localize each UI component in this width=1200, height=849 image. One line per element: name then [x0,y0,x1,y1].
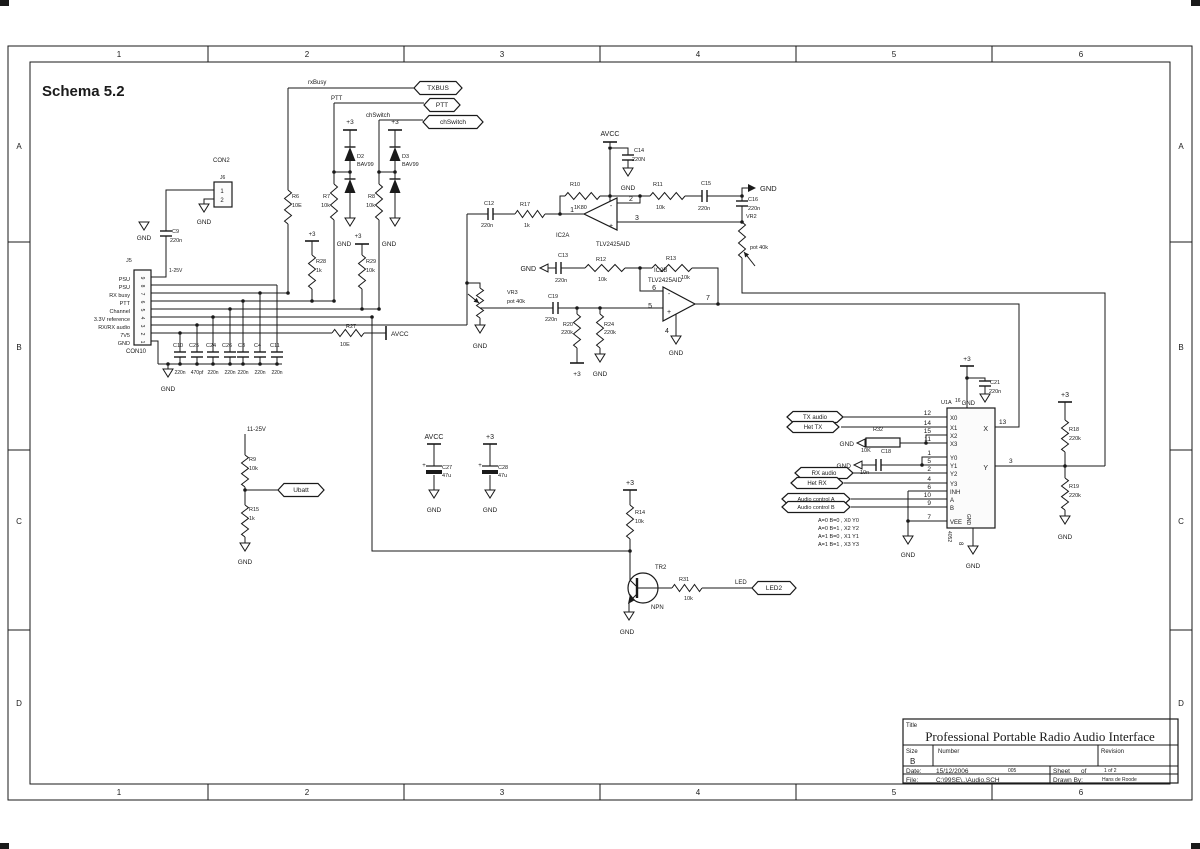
schematic-label: C4 [254,343,261,349]
schematic-label: + [609,223,613,230]
junction-dot [195,323,199,327]
junction-dot [716,302,720,306]
gnd-arrow-icon [624,612,634,620]
border-column-number: 1 [117,788,122,797]
schematic-label: A [950,498,954,504]
schematic-label: C24 [206,343,216,349]
corner-mark [0,0,9,6]
schematic-label: 10K [861,448,871,454]
port-label: Audio control B [797,505,835,511]
junction-dot [228,307,232,311]
schematic-label: GND [901,552,916,559]
port-label: LED2 [766,585,783,592]
junction-dot [348,170,352,174]
port-label: TX audio [803,415,828,421]
junction-dot [360,307,364,311]
schematic-label: C3 [238,343,245,349]
resistor [242,505,249,537]
schematic-label: C16 [748,197,758,203]
junction-dot [608,194,612,198]
resistor [627,505,634,539]
border-column-number: 3 [500,50,505,59]
schematic-label: GND [473,343,488,350]
junction-dot [178,362,182,366]
title-block-text: Hans de Roode [1102,777,1137,783]
schematic-label: 6 [927,484,931,491]
schematic-label: 10E [292,203,302,209]
resistor [1062,478,1069,510]
schematic-label: 10E [340,342,350,348]
schematic-label: 220n [237,370,248,376]
junction-dot [241,362,245,366]
schematic-label: GND [965,514,971,526]
schematic-label: GND [337,241,352,248]
schematic-label: GND [520,266,536,273]
schematic-label: 16 [955,398,961,404]
schematic-label: 3 [139,325,145,328]
schematic-label: 7V5 [120,333,130,339]
schematic-label: 7 [927,514,931,521]
schematic-label: 7 [706,295,710,302]
resistor [309,255,316,289]
junction-dot [638,266,642,270]
wire [151,236,166,277]
wire [922,457,947,465]
schematic-label: CON10 [126,349,147,355]
schematic-label: D3 [402,154,409,160]
junction-dot [332,170,336,174]
junction-dot [638,194,642,198]
gnd-arrow-icon [429,490,439,498]
wire [610,148,628,155]
gnd-arrow-icon [1060,516,1070,524]
schematic-label: U1A [941,400,952,406]
schematic-label: GND [238,559,253,566]
schematic-label: 220n [254,370,265,376]
schematic-label: 10k [366,268,375,274]
port-label: TXBUS [427,85,449,92]
schematic-label: BAV99 [357,162,374,168]
schematic-label: Y0 [950,456,958,462]
schematic-label: 1 [139,341,145,344]
border-row-letter: A [16,142,22,151]
schematic-label: + [667,309,671,316]
junction-dot [166,362,170,366]
schematic-label: J6 [220,175,226,181]
schematic-label: R17 [520,202,530,208]
schematic-label: PTT [120,301,131,307]
resistor [1062,420,1069,452]
schematic-label: C25 [189,343,199,349]
schematic-label: +3 [963,356,971,363]
schematic-canvas: 112233445566AABBCCDDProfessional Portabl… [0,0,1200,849]
border-column-number: 2 [305,788,310,797]
gnd-arrow-icon [485,490,495,498]
junction-dot [575,306,579,310]
schematic-label: 2 [629,196,633,203]
junction-dot [598,306,602,310]
schematic-label: 10 [924,492,932,499]
title-block-text: File: [906,777,918,784]
junction-dot [1063,464,1067,468]
schematic-label: TLV2425AID [648,278,683,284]
schematic-label: C27 [442,465,452,471]
schematic-label: R9 [249,457,256,463]
schematic-label: C9 [172,229,179,235]
schematic-page: 112233445566AABBCCDDProfessional Portabl… [0,0,1200,849]
corner-mark [1191,0,1200,6]
schematic-label: 220n [545,317,557,323]
schematic-label: +3 [355,234,363,240]
schematic-label: GND [620,629,635,636]
schematic-label: 10k [656,205,665,211]
title-block-text: Sheet [1053,768,1070,775]
wire [467,283,480,288]
schematic-label: 3 [1009,458,1013,465]
junction-dot [211,362,215,366]
schematic-label: R24 [604,322,614,328]
junction-dot [393,170,397,174]
resistor [285,190,292,224]
schematic-label: 10k [684,596,693,602]
schematic-label: 470pf [191,370,204,376]
junction-dot [558,212,562,216]
schematic-label: TR2 [655,565,667,571]
schematic-label: C26 [222,343,232,349]
gnd-arrow-icon [671,336,681,344]
junction-dot [377,307,381,311]
resistor-r32-body [866,438,900,447]
gnd-arrow-icon [968,546,978,554]
schematic-label: 220k [1069,436,1081,442]
border-column-number: 6 [1079,50,1084,59]
schematic-label: R8 [368,194,375,200]
schematic-label: R29 [366,259,376,265]
schematic-label: +3 [486,434,494,441]
schematic-label: X3 [950,442,958,448]
gnd-arrow-icon [139,222,149,230]
schematic-label: C14 [634,148,644,154]
title-block-text: of [1081,768,1087,775]
schematic-label: GND [621,185,636,192]
schematic-label: A=1 B=1 , X3 Y3 [818,542,859,548]
schematic-label: C10 [173,343,183,349]
junction-dot [965,376,969,380]
schematic-label: R18 [1069,427,1079,433]
schematic-label: B [950,506,954,512]
schematic-label: AVCC [391,331,409,338]
schematic-label: R31 [679,577,689,583]
border-column-number: 6 [1079,788,1084,797]
wire [204,199,214,204]
schematic-label: 4 [665,328,669,335]
resistor [332,330,364,337]
capacitor-polarized-plate [482,470,498,474]
schematic-label: 220n [170,238,182,244]
schematic-label: 6 [139,301,145,304]
schematic-label: 10k [321,203,330,209]
schematic-label: 220k [1069,493,1081,499]
schematic-label: 4 [139,317,145,320]
schematic-label: AVCC [601,131,620,138]
schematic-label: 47u [498,473,507,479]
gnd-arrow-icon [623,168,633,176]
schematic-label: GND [483,507,498,514]
schematic-label: R10 [570,182,580,188]
schematic-label: 220n [748,206,760,212]
schematic-label: D2 [357,154,364,160]
schematic-label: 4052 [946,531,952,542]
schematic-label: 10k [249,466,258,472]
schematic-label: 14 [924,420,932,427]
title-block-text: Title [906,723,918,729]
schematic-label: R15 [249,507,259,513]
corner-mark [1191,843,1200,849]
schematic-label: R11 [653,182,663,188]
junction-dot [243,488,247,492]
schematic-label: C13 [558,253,568,259]
schematic-label: +3 [1061,392,1069,399]
schematic-label: R13 [666,256,676,262]
schematic-label: Schema 5.2 [42,83,125,100]
schematic-label: 8 [957,542,963,546]
gnd-arrow-icon [163,369,173,377]
border-row-letter: A [1178,142,1184,151]
schematic-label: R19 [1069,484,1079,490]
resistor [585,265,625,272]
junction-dot [228,362,232,366]
schematic-label: 15 [924,428,932,435]
schematic-label: 1k [249,516,255,522]
junction-dot [370,315,374,319]
resistor [376,184,383,220]
capacitor-polarized-plate [426,470,442,474]
schematic-label: R6 [292,194,299,200]
schematic-label: +3 [309,232,317,238]
resistor [242,455,249,487]
gnd-arrow-icon [199,204,209,212]
schematic-label: + [478,463,482,469]
schematic-label: GND [837,463,852,470]
schematic-label: RX/RX audio [98,325,130,331]
junction-dot [211,315,215,319]
schematic-label: R32 [873,427,883,433]
gnd-port-icon [854,461,862,469]
schematic-label: GND [427,507,442,514]
schematic-label: R20 [563,322,573,328]
schematic-label: GND [966,563,981,570]
border-column-number: 5 [892,50,897,59]
schematic-label: 1k [316,268,322,274]
schematic-label: 220n [271,370,282,376]
title-block-text: Date: [906,768,922,775]
resistor [650,193,685,200]
schematic-label: PSU [119,285,130,291]
schematic-label: GND [197,219,212,226]
border-column-number: 1 [117,50,122,59]
wire [630,580,636,586]
schematic-label: +3 [391,119,399,126]
gnd-port-icon [540,264,548,272]
title-block-text: Size [906,749,918,755]
schematic-label: TLV2425AID [596,242,631,248]
schematic-label: 9 [927,500,931,507]
schematic-label: GND [840,441,855,448]
schematic-label: A=1 B=0 , X1 Y1 [818,534,859,540]
schematic-label: INH [950,490,960,496]
schematic-label: 12 [924,410,932,417]
schematic-label: GND [161,386,176,393]
schematic-label: GND [137,235,152,242]
schematic-label: C12 [484,201,494,207]
border-row-letter: B [16,343,21,352]
schematic-label: 220n [174,370,185,376]
gnd-arrow-icon [475,325,485,333]
schematic-label: C15 [701,181,711,187]
potentiometer [477,288,484,318]
port-label: Ubatt [293,487,309,494]
junction-dot [241,299,245,303]
schematic-label: J5 [126,258,132,264]
junction-dot [275,362,279,366]
schematic-label: AVCC [425,434,444,441]
junction-dot [377,170,381,174]
junction-dot [628,549,632,553]
schematic-label: Y2 [950,472,958,478]
schematic-label: BAV99 [402,162,419,168]
schematic-label: PTT [331,96,343,102]
schematic-label: 1K80 [574,205,587,211]
schematic-label: 10k [681,275,690,281]
schematic-label: 5 [927,458,931,465]
resistor [574,314,581,348]
title-block-text: 15/12/2006 [936,768,969,775]
schematic-label: 2 [927,466,931,473]
schematic-label: 1k [524,223,530,229]
border-row-letter: C [16,517,22,526]
diode [390,147,401,161]
schematic-label: 2 [139,333,145,336]
schematic-label: +3 [573,371,581,378]
resistor [331,184,338,220]
junction-dot [608,146,612,150]
schematic-label: 4 [927,476,931,483]
gnd-port-icon [748,184,756,192]
schematic-label: GND [760,184,777,193]
sheet-outer-border [8,46,1192,800]
border-row-letter: C [1178,517,1184,526]
schematic-label: VR2 [746,214,757,220]
schematic-label: 10k [598,277,607,283]
schematic-label: 220n [989,389,1001,395]
schematic-label: 9 [139,277,145,280]
schematic-label: C18 [881,449,891,455]
schematic-label: + [422,463,426,469]
schematic-label: 5 [648,303,652,310]
schematic-label: C11 [270,343,280,349]
junction-dot [286,291,290,295]
schematic-label: A=0 B=1 , X2 Y2 [818,526,859,532]
schematic-label: IC2A [556,233,569,239]
transistor-emitter-arrow [628,594,635,604]
schematic-label: 11-25V [247,427,266,433]
schematic-label: 220k [604,330,616,336]
gnd-port-icon [857,439,865,447]
schematic-label: R28 [316,259,326,265]
resistor [672,585,702,592]
schematic-label: 220n [698,206,710,212]
wire [372,317,630,551]
resistor [565,193,600,200]
schematic-label: NPN [651,605,664,611]
title-block-title: Professional Portable Radio Audio Interf… [925,729,1155,744]
schematic-label: 220n [224,370,235,376]
diode [345,179,356,193]
schematic-label: C21 [990,380,1000,386]
schematic-label: VEE [950,520,962,526]
schematic-label: 13 [999,419,1007,426]
schematic-label: 1-25V [169,268,183,274]
schematic-label: LED [735,580,747,586]
title-block-text: Revision [1101,749,1124,755]
schematic-label: R12 [596,257,606,263]
schematic-label: R14 [635,510,645,516]
schematic-label: 47u [442,473,451,479]
gnd-arrow-icon [980,394,990,402]
border-column-number: 4 [696,788,701,797]
schematic-label: C19 [548,294,558,300]
schematic-label: 220k [561,330,573,336]
title-block-text: Drawn By: [1053,777,1083,784]
schematic-label: GND [962,401,976,407]
junction-dot [906,519,910,523]
diode [390,179,401,193]
schematic-label: Y [983,465,988,472]
wire [151,341,158,364]
schematic-label: GND [593,371,608,378]
title-block-text: Number [938,749,959,755]
junction-dot [310,299,314,303]
gnd-arrow-icon [595,354,605,362]
title-block-text: 005 [1008,768,1017,774]
title-block-text: B [910,757,915,766]
schematic-label: 10k [366,203,375,209]
schematic-label: CON2 [213,158,230,164]
schematic-label: +3 [346,119,354,126]
junction-dot [740,220,744,224]
schematic-label: 6 [652,285,656,292]
schematic-label: 220n [207,370,218,376]
wire [560,196,565,214]
schematic-label: GND [669,350,684,357]
schematic-label: 220n [481,223,493,229]
schematic-label: chSwitch [366,113,390,119]
junction-dot [465,281,469,285]
schematic-label: PSU [119,277,130,283]
schematic-label: 3 [635,215,639,222]
schematic-label: 10k [635,519,644,525]
schematic-label: 11 [924,436,931,443]
border-column-number: 2 [305,50,310,59]
schematic-label: A=0 B=0 , X0 Y0 [818,518,859,524]
border-column-number: 3 [500,788,505,797]
gnd-arrow-icon [903,536,913,544]
schematic-label: 1 [570,207,574,214]
port-label: Het TX [804,425,823,431]
schematic-label: Y3 [950,482,958,488]
schematic-label: GND [382,241,397,248]
corner-mark [0,843,9,849]
